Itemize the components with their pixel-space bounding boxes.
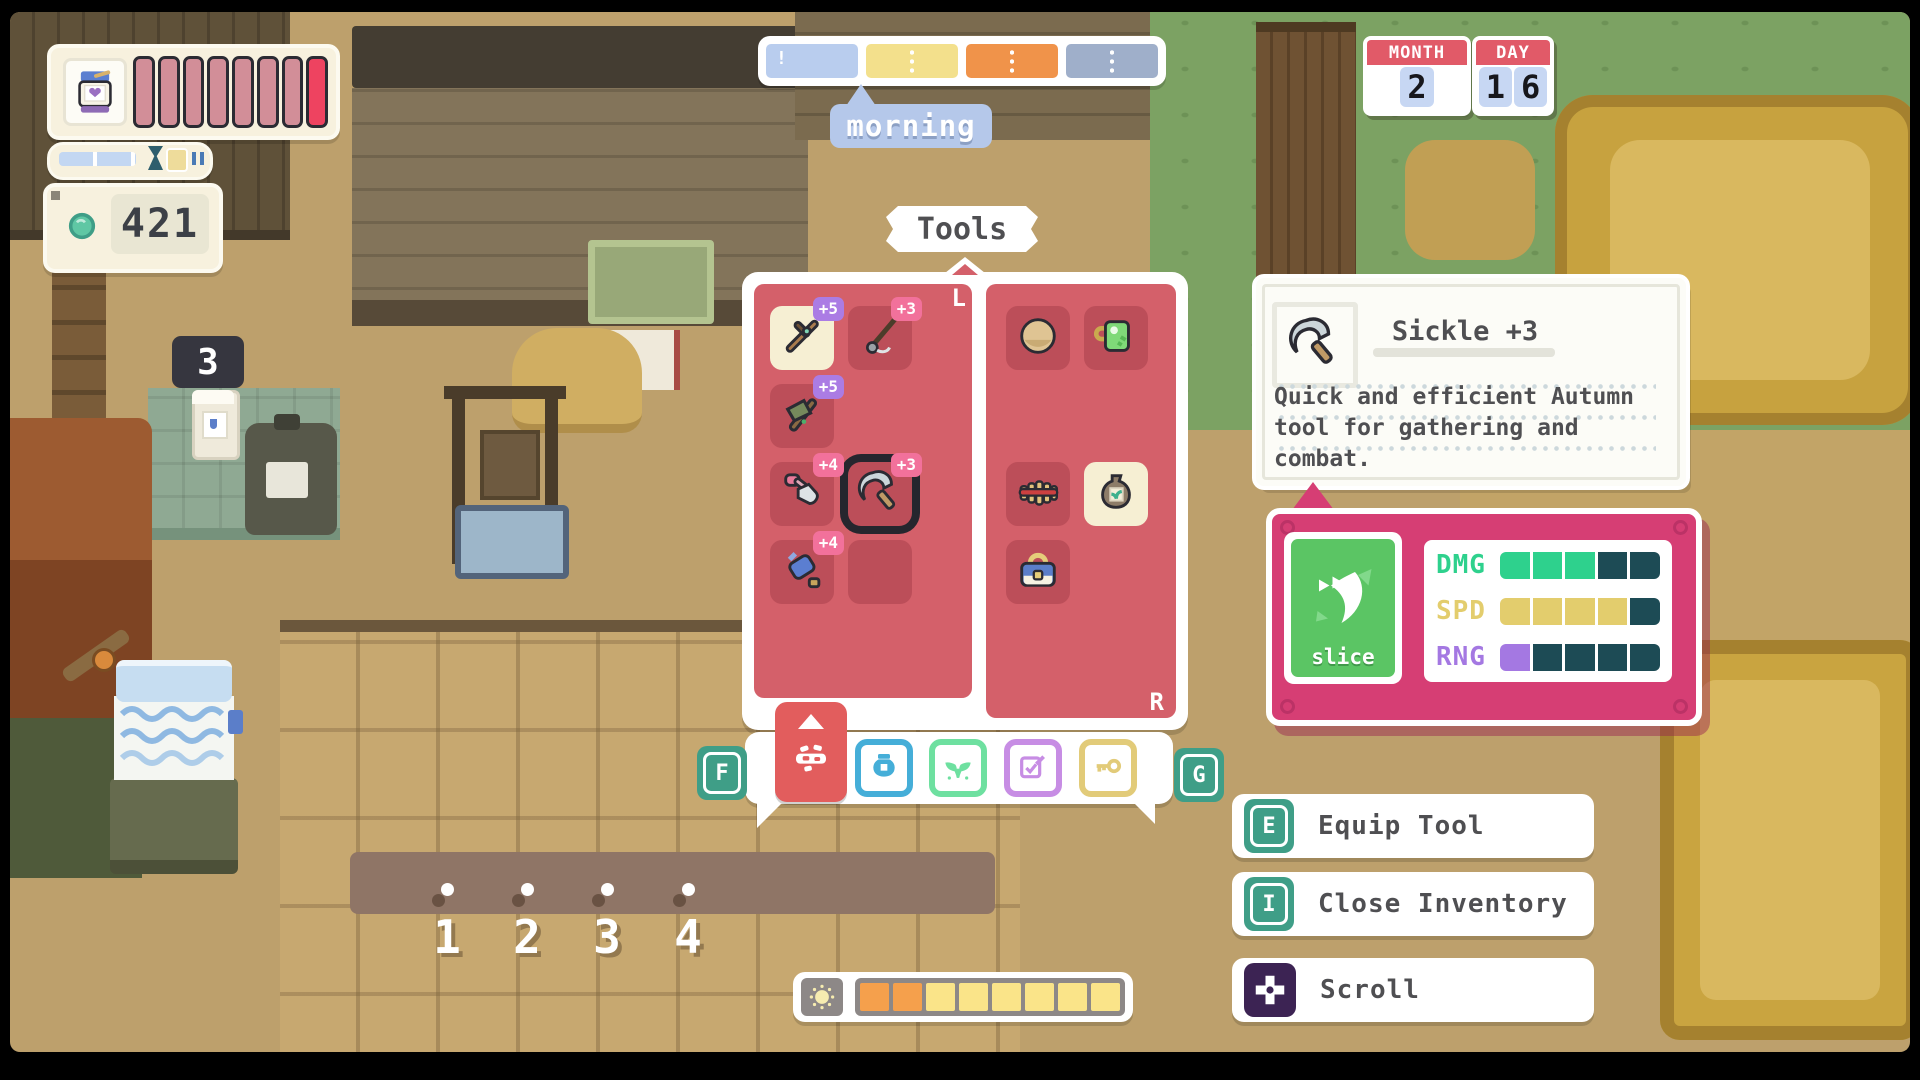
inventory-slot-R-3 <box>1006 384 1070 448</box>
daylight-segment <box>959 983 988 1011</box>
key-hint-i: I <box>1244 877 1294 931</box>
inventory-slot-R-8 <box>1084 540 1148 604</box>
rivet <box>1673 699 1688 714</box>
health-bar <box>133 56 328 128</box>
upgrade-badge: +4 <box>813 453 844 477</box>
stat-cell-empty <box>1598 552 1628 579</box>
time-of-day-label: morning <box>830 104 992 148</box>
tab-jar[interactable] <box>855 739 913 797</box>
inventory-slot-R-7[interactable] <box>1006 540 1070 604</box>
game-screen: 1234 <box>0 0 1920 1080</box>
calendar-day-card: DAY 16 <box>1472 36 1554 116</box>
tab-sprout[interactable] <box>929 739 987 797</box>
ability-card: slice <box>1284 532 1402 684</box>
game-viewport: 1234 <box>10 12 1910 1052</box>
plot-marker-dot <box>521 883 534 896</box>
health-segment <box>257 56 279 128</box>
hint-equip-tool[interactable]: EEquip Tool <box>1232 794 1594 858</box>
inventory-slot-L-8[interactable] <box>848 540 912 604</box>
inventory-right-column: R <box>986 284 1176 718</box>
world-building-center <box>352 88 808 320</box>
stat-cell-empty <box>1630 598 1660 625</box>
health-segment <box>183 56 205 128</box>
ability-card-label: slice <box>1291 645 1395 669</box>
inventory-title-banner: Tools <box>886 206 1038 252</box>
panel-peak-inner <box>952 264 978 275</box>
world-water-basin <box>455 505 569 579</box>
daylight-segment <box>1058 983 1087 1011</box>
money-value-box: 421 <box>111 194 209 254</box>
calendar-month-card: MONTH 2 <box>1363 36 1471 116</box>
cooler-latch <box>228 710 243 734</box>
stat-name: DMG <box>1436 550 1500 580</box>
plate-icon <box>1015 313 1061 363</box>
time-bubble-tail <box>846 84 876 106</box>
tab-tools-selected[interactable] <box>775 702 847 802</box>
money-value: 421 <box>121 201 199 247</box>
time-segment-night <box>1066 44 1158 78</box>
day-header: DAY <box>1476 40 1550 65</box>
progress-bar <box>47 142 213 180</box>
game-world: 1234 <box>10 12 1910 1052</box>
tasks-tab-icon <box>1017 750 1049 786</box>
stat-cell-empty <box>1598 644 1628 671</box>
segment-dots <box>1010 48 1014 74</box>
sun-icon <box>801 978 843 1016</box>
day-value: 16 <box>1476 65 1550 108</box>
hint-close-inventory[interactable]: IClose Inventory <box>1232 872 1594 936</box>
rivet <box>1280 699 1295 714</box>
stat-row-dmg: DMG <box>1436 550 1660 580</box>
world-hay-pile <box>512 328 642 433</box>
stat-cell-filled <box>1500 552 1530 579</box>
stat-cell-empty <box>1533 644 1563 671</box>
upgrade-badge: +5 <box>813 297 844 321</box>
month-header: MONTH <box>1367 40 1467 65</box>
health-segment <box>133 56 155 128</box>
cooler-lid <box>116 660 232 702</box>
stat-name: SPD <box>1436 596 1500 626</box>
daylight-segment <box>860 983 889 1011</box>
inventory-panel: L +5+3+5+4+3+4 R <box>742 272 1188 730</box>
health-segment <box>306 56 328 128</box>
day-digit: 6 <box>1514 67 1547 107</box>
plot-number: 1 <box>427 910 467 964</box>
right-column-marker: R <box>1150 688 1164 716</box>
daylight-segment <box>926 983 955 1011</box>
health-segment <box>282 56 304 128</box>
stat-cell-filled <box>1533 552 1563 579</box>
world-eave-shadow <box>352 300 808 326</box>
tab-bar-tail-left <box>757 802 783 828</box>
world-dirt-patch <box>1405 140 1535 260</box>
milestone-jar <box>192 390 240 460</box>
tab-bar-tail-right <box>1133 802 1155 824</box>
world-shop-sign <box>588 240 714 324</box>
segment-dots <box>910 48 914 74</box>
tab-key[interactable] <box>1079 739 1137 797</box>
upgrade-badge: +3 <box>891 453 922 477</box>
daylight-bar <box>793 972 1133 1022</box>
key-tab-icon <box>1092 750 1124 786</box>
money-panel: 421 <box>43 183 223 273</box>
hint-label: Equip Tool <box>1318 811 1485 841</box>
daylight-segment <box>992 983 1021 1011</box>
slice-swoosh-icon <box>1307 563 1379 635</box>
stat-cell-empty <box>1565 644 1595 671</box>
health-segment <box>207 56 229 128</box>
cooler-lever-joint <box>92 648 116 672</box>
rivet <box>1673 520 1688 535</box>
upgrade-badge: +5 <box>813 375 844 399</box>
stat-cell-filled <box>1565 552 1595 579</box>
stat-bar <box>1500 552 1660 579</box>
health-panel <box>47 44 340 140</box>
segment-dots <box>1110 48 1114 74</box>
stat-row-rng: RNG <box>1436 642 1660 672</box>
pause-icon <box>192 152 204 165</box>
tab-tasks[interactable] <box>1004 739 1062 797</box>
panflute-icon <box>1015 469 1061 519</box>
stat-cell-filled <box>1598 598 1628 625</box>
left-column-marker: L <box>952 284 966 312</box>
stat-name: RNG <box>1436 642 1500 672</box>
marker-chip <box>166 148 188 172</box>
inventory-slot-R-1[interactable] <box>1006 306 1070 370</box>
inventory-tab-bar <box>745 732 1173 804</box>
stat-cell-filled <box>1533 598 1563 625</box>
key-hint-f[interactable]: F <box>697 746 747 800</box>
jar-tab-icon <box>868 750 900 786</box>
stat-bar <box>1500 644 1660 671</box>
inventory-slot-L-2[interactable]: +3 <box>848 306 912 370</box>
milestone-sign: 3 <box>172 336 244 388</box>
seed-bag-icon <box>1093 469 1139 519</box>
stat-cell-filled <box>1500 598 1530 625</box>
health-segment <box>158 56 180 128</box>
stat-cell-filled <box>1565 598 1595 625</box>
plot-marker-dot <box>441 883 454 896</box>
upgrade-badge: +4 <box>813 531 844 555</box>
daylight-segment <box>1025 983 1054 1011</box>
hint-label: Close Inventory <box>1318 889 1568 919</box>
inventory-slot-R-6[interactable] <box>1084 462 1148 526</box>
inventory-slot-L-7[interactable]: +4 <box>770 540 834 604</box>
progress-fill <box>59 152 136 166</box>
hint-label: Scroll <box>1320 975 1420 1005</box>
inventory-slot-L-6[interactable]: +3 <box>848 462 912 526</box>
world-roof <box>352 26 808 88</box>
key-hint-e: E <box>1244 799 1294 853</box>
basket-icon <box>1015 547 1061 597</box>
daylight-segment <box>893 983 922 1011</box>
stat-cell-empty <box>1630 644 1660 671</box>
stat-cell-empty <box>1630 552 1660 579</box>
time-segment-dawn: ! <box>766 44 858 78</box>
cooler-body <box>114 696 234 780</box>
plot-marker-dot <box>682 883 695 896</box>
inventory-slot-L-5[interactable]: +4 <box>770 462 834 526</box>
tool-stats-panel: slice DMGSPDRNG <box>1266 508 1702 726</box>
dpad-icon <box>1244 963 1296 1017</box>
plot-number: 3 <box>587 910 627 964</box>
daylight-segment <box>1091 983 1120 1011</box>
dawn-glyph: ! <box>776 48 787 69</box>
mug-icon <box>1093 313 1139 363</box>
key-letter: I <box>1250 883 1288 925</box>
stat-row-spd: SPD <box>1436 596 1660 626</box>
health-segment <box>232 56 254 128</box>
inventory-left-column: L +5+3+5+4+3+4 <box>754 284 972 698</box>
plot-number: 2 <box>507 910 547 964</box>
tooltip-underline <box>1373 348 1555 357</box>
world-plot-bottom-right-inner <box>1700 680 1880 1000</box>
time-segment-afternoon <box>966 44 1058 78</box>
inventory-slot-L-4 <box>848 384 912 448</box>
stat-bar <box>1500 598 1660 625</box>
month-value: 2 <box>1400 67 1433 107</box>
coin-icon <box>65 209 99 247</box>
plot-marker-dot <box>601 883 614 896</box>
inventory-slot-R-5[interactable] <box>1006 462 1070 526</box>
inventory-slot-L-1[interactable]: +5 <box>770 306 834 370</box>
day-digit: 1 <box>1479 67 1512 107</box>
cooler-base <box>110 778 238 874</box>
hint-scroll[interactable]: Scroll <box>1232 958 1594 1022</box>
ability-card-face: slice <box>1291 539 1395 677</box>
key-hint-g[interactable]: G <box>1174 748 1224 802</box>
sickle-icon <box>1288 316 1342 374</box>
panel-decoration <box>51 191 60 200</box>
sign-number: 3 <box>197 342 219 383</box>
world-sack-label <box>266 462 308 498</box>
key-f-label: F <box>703 752 741 794</box>
key-letter: E <box>1250 805 1288 847</box>
daylight-segments <box>855 978 1125 1016</box>
tooltip-description: Quick and efficient Autumn tool for gath… <box>1274 382 1656 475</box>
time-of-day-bar: ! <box>758 36 1166 86</box>
tooltip-title: Sickle +3 <box>1340 316 1590 347</box>
key-g-label: G <box>1180 754 1218 796</box>
item-tooltip: Sickle +3 Quick and efficient Autumn too… <box>1256 278 1686 486</box>
time-label-text: morning <box>846 109 975 143</box>
inventory-slot-R-4 <box>1084 384 1148 448</box>
world-sack-tie <box>274 414 300 430</box>
world-well-box <box>480 430 540 500</box>
time-segment-morning <box>866 44 958 78</box>
jam-jar-icon <box>63 58 127 126</box>
inventory-title: Tools <box>917 212 1007 247</box>
spool-icon <box>148 146 163 170</box>
tools-tab-icon <box>791 737 831 781</box>
milestone-jar-drop <box>210 419 217 429</box>
plot-number: 4 <box>668 910 708 964</box>
sprout-tab-icon <box>942 750 974 786</box>
stat-bars-box: DMGSPDRNG <box>1424 540 1672 682</box>
inventory-slot-L-3[interactable]: +5 <box>770 384 834 448</box>
inventory-slot-R-2[interactable] <box>1084 306 1148 370</box>
stats-panel-tail <box>1292 482 1334 510</box>
upgrade-badge: +3 <box>891 297 922 321</box>
up-arrow-icon <box>798 714 824 729</box>
cooler-waves <box>114 696 234 780</box>
stat-cell-filled <box>1500 644 1530 671</box>
milestone-jar-lid <box>192 390 234 404</box>
